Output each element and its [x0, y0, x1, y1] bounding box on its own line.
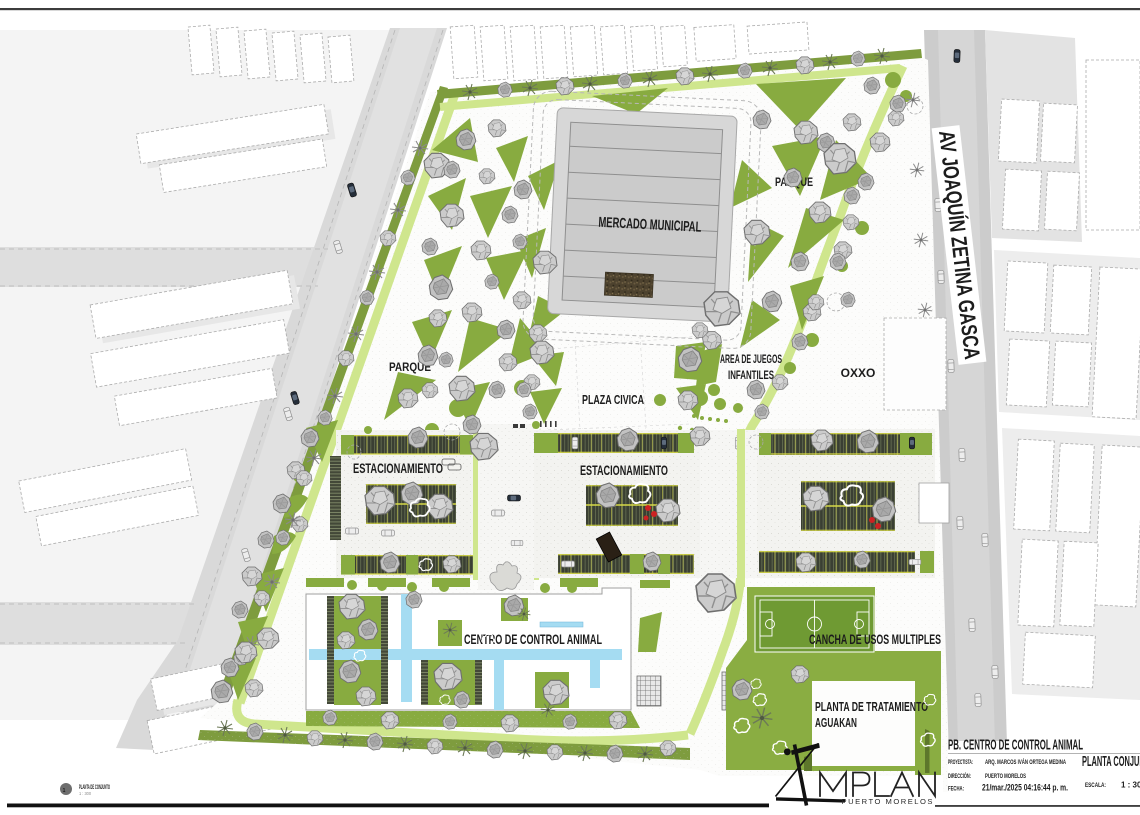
svg-text:ARQ. MARCOS IVÁN ORTEGA MEDINA: ARQ. MARCOS IVÁN ORTEGA MEDINA	[985, 759, 1066, 766]
svg-text:FECHA:: FECHA:	[948, 787, 964, 793]
svg-text:ESTACIONAMIENTO: ESTACIONAMIENTO	[580, 463, 668, 478]
svg-text:PROYECTISTA:: PROYECTISTA:	[948, 760, 973, 766]
svg-text:21/mar./2025 04:16:44 p. m.: 21/mar./2025 04:16:44 p. m.	[982, 783, 1068, 793]
svg-text:PLANTA DE TRATAMIENTO: PLANTA DE TRATAMIENTO	[815, 700, 928, 714]
svg-text:INFANTILES: INFANTILES	[728, 368, 774, 382]
svg-text:AGUAKAN: AGUAKAN	[815, 716, 857, 730]
svg-text:ESTACIONAMIENTO: ESTACIONAMIENTO	[353, 461, 443, 476]
svg-text:1 : 300: 1 : 300	[1121, 781, 1140, 790]
svg-text:OXXO: OXXO	[841, 366, 876, 380]
svg-text:ESCALA:: ESCALA:	[1085, 783, 1106, 789]
svg-text:1 : 300: 1 : 300	[79, 791, 91, 796]
svg-text:PUERTO MORELOS: PUERTO MORELOS	[985, 773, 1026, 780]
svg-text:PLAZA CIVICA: PLAZA CIVICA	[582, 393, 644, 407]
svg-text:DIRECCIÓN:: DIRECCIÓN:	[948, 772, 971, 780]
svg-text:PB. CENTRO DE CONTROL ANIMAL: PB. CENTRO DE CONTROL ANIMAL	[948, 737, 1083, 754]
svg-text:CANCHA DE USOS MULTIPLES: CANCHA DE USOS MULTIPLES	[809, 632, 941, 647]
svg-text:PUERTO MORELOS: PUERTO MORELOS	[842, 797, 934, 806]
svg-text:PLANTA CONJUNTO: PLANTA CONJUNTO	[1082, 753, 1140, 770]
svg-text:AREA DE JUEGOS: AREA DE JUEGOS	[720, 352, 782, 366]
svg-text:1: 1	[63, 788, 66, 794]
